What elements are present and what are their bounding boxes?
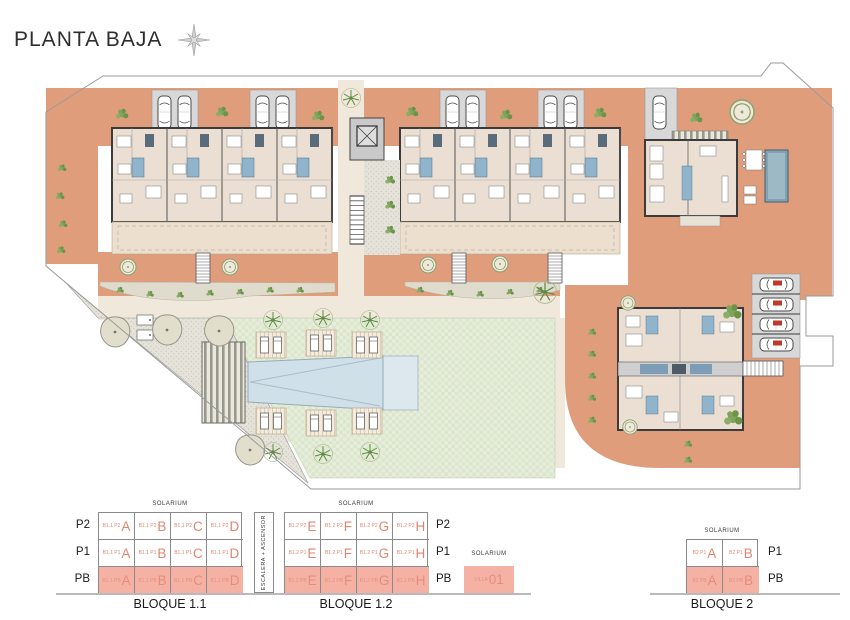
unit-cell-b12-p2-e: B1.2 P2E — [285, 513, 321, 540]
solarium-label-b12: SOLARIUM — [284, 501, 428, 507]
villa-pool — [765, 150, 788, 202]
unit-cell-b12-p2-f: B1.2 P2F — [321, 513, 357, 540]
stairs-icon — [548, 253, 562, 283]
stairs-icon — [350, 196, 364, 244]
car-icon — [466, 96, 479, 129]
villa-01-cell: VILLA 01 — [464, 566, 514, 593]
unit-cell-b11-p1-d: B1.1 P1D — [207, 540, 243, 567]
sunbeds-icon — [352, 408, 382, 434]
solarium-label-b2: SOLARIUM — [686, 528, 758, 534]
tree-icon — [120, 259, 136, 275]
unit-cell-b12-p1-g: B1.2 P1G — [357, 540, 393, 567]
unit-cell-b11-p2-d: B1.1 P2D — [207, 513, 243, 540]
stairs-icon — [452, 253, 466, 283]
tree-icon — [222, 259, 238, 275]
solarium-label-b11: SOLARIUM — [98, 501, 242, 507]
unit-cell-b11-p2-a: B1.1 P2A — [99, 513, 135, 540]
unit-cell-b12-p1-h: B1.2 P1H — [393, 540, 429, 567]
unit-cell-b2-pb-b: B2 PBB — [723, 567, 759, 594]
boundary-notch — [806, 296, 833, 336]
unit-cell-b12-p1-f: B1.2 P1F — [321, 540, 357, 567]
unit-cell-b11-pb-a: B1.1 PBA — [99, 567, 135, 594]
unit-cell-b11-p1-b: B1.1 P1B — [135, 540, 171, 567]
tree-icon — [621, 296, 635, 310]
parking-label-badge — [773, 341, 782, 346]
unit-cell-b2-p1-b: B2 P1B — [723, 540, 759, 567]
tree-icon — [623, 420, 637, 434]
unit-cell-b2-pb-a: B2 PBA — [687, 567, 723, 594]
bloque-1-2-building — [400, 128, 620, 254]
pergola — [202, 342, 245, 423]
olive-tree-icon — [153, 315, 182, 345]
tree-icon — [730, 100, 754, 124]
olive-tree-icon — [205, 316, 234, 346]
floor-label-pb-b2: PB — [768, 566, 802, 593]
bloque-1-1-building — [112, 128, 332, 254]
unit-cell-b11-p2-c: B1.1 P2C — [171, 513, 207, 540]
car-icon — [446, 96, 459, 129]
bloque-2-table: B2 P1A B2 P1B B2 PBA B2 PBB — [686, 539, 758, 595]
unit-cell-b2-p1-a: B2 P1A — [687, 540, 723, 567]
tree-icon — [492, 256, 508, 272]
unit-cell-b12-pb-g: B1.2 PBG — [357, 567, 393, 594]
sunbeds-icon — [306, 410, 336, 436]
car-icon — [653, 96, 666, 129]
unit-cell-b12-p2-h: B1.2 P2H — [393, 513, 429, 540]
car-icon — [256, 96, 269, 129]
parking-label-badge — [773, 301, 782, 306]
car-icon — [158, 96, 171, 129]
floor-label-pb: PB — [56, 566, 90, 593]
unit-cell-b11-pb-d: B1.1 PBD — [207, 567, 243, 594]
floor-label-p2-right: P2 — [436, 512, 470, 539]
sunbeds-icon — [352, 332, 382, 358]
bloque-1-2-table: B1.2 P2E B1.2 P2F B1.2 P2G B1.2 P2H B1.2… — [284, 512, 428, 595]
car-icon — [564, 96, 577, 129]
floor-label-p1: P1 — [56, 539, 90, 566]
olive-tree-icon — [101, 317, 130, 347]
car-icon — [276, 96, 289, 129]
unit-cell-b11-p2-b: B1.1 P2B — [135, 513, 171, 540]
unit-cell-b12-pb-f: B1.2 PBF — [321, 567, 357, 594]
bloque-1-2-label: BLOQUE 1.2 — [284, 597, 428, 611]
olive-tree-icon — [236, 435, 265, 465]
solarium-label-villa: SOLARIUM — [464, 551, 514, 557]
sunbeds-icon — [256, 408, 286, 434]
floor-label-p1-b2: P1 — [768, 539, 802, 566]
car-icon — [178, 96, 191, 129]
unit-cell-b12-p1-e: B1.2 P1E — [285, 540, 321, 567]
unit-cell-b11-p1-a: B1.1 P1A — [99, 540, 135, 567]
unit-cell-b12-pb-h: B1.2 PBH — [393, 567, 429, 594]
bloque-1-1-table: B1.1 P2A B1.1 P2B B1.1 P2C B1.1 P2D B1.1… — [98, 512, 242, 595]
unit-cell-b11-p1-c: B1.1 P1C — [171, 540, 207, 567]
sunbeds-icon — [256, 332, 286, 358]
unit-cell-b11-pb-b: B1.1 PBB — [135, 567, 171, 594]
parking-bays — [752, 274, 800, 358]
unit-cell-b11-pb-c: B1.1 PBC — [171, 567, 207, 594]
floor-legend: P2 P1 PB SOLARIUM B1.1 P2A B1.1 P2B B1.1… — [56, 496, 846, 618]
stairwell-cell: ESCALERA + ASCENSOR — [254, 512, 274, 593]
bloque-2-label: BLOQUE 2 — [672, 597, 772, 611]
bloque-1-1-label: BLOQUE 1.1 — [98, 597, 242, 611]
tree-icon — [420, 257, 436, 273]
stairs-icon — [196, 253, 210, 283]
parking-label-badge — [773, 281, 782, 286]
ground-line-2 — [650, 593, 840, 595]
unit-cell-b12-pb-e: B1.2 PBE — [285, 567, 321, 594]
ground-line — [56, 593, 531, 595]
communal-pool — [248, 356, 418, 410]
unit-cell-b12-p2-g: B1.2 P2G — [357, 513, 393, 540]
sunbeds-icon — [306, 330, 336, 356]
parking-label-badge — [773, 321, 782, 326]
floor-label-p2: P2 — [56, 512, 90, 539]
car-icon — [544, 96, 557, 129]
